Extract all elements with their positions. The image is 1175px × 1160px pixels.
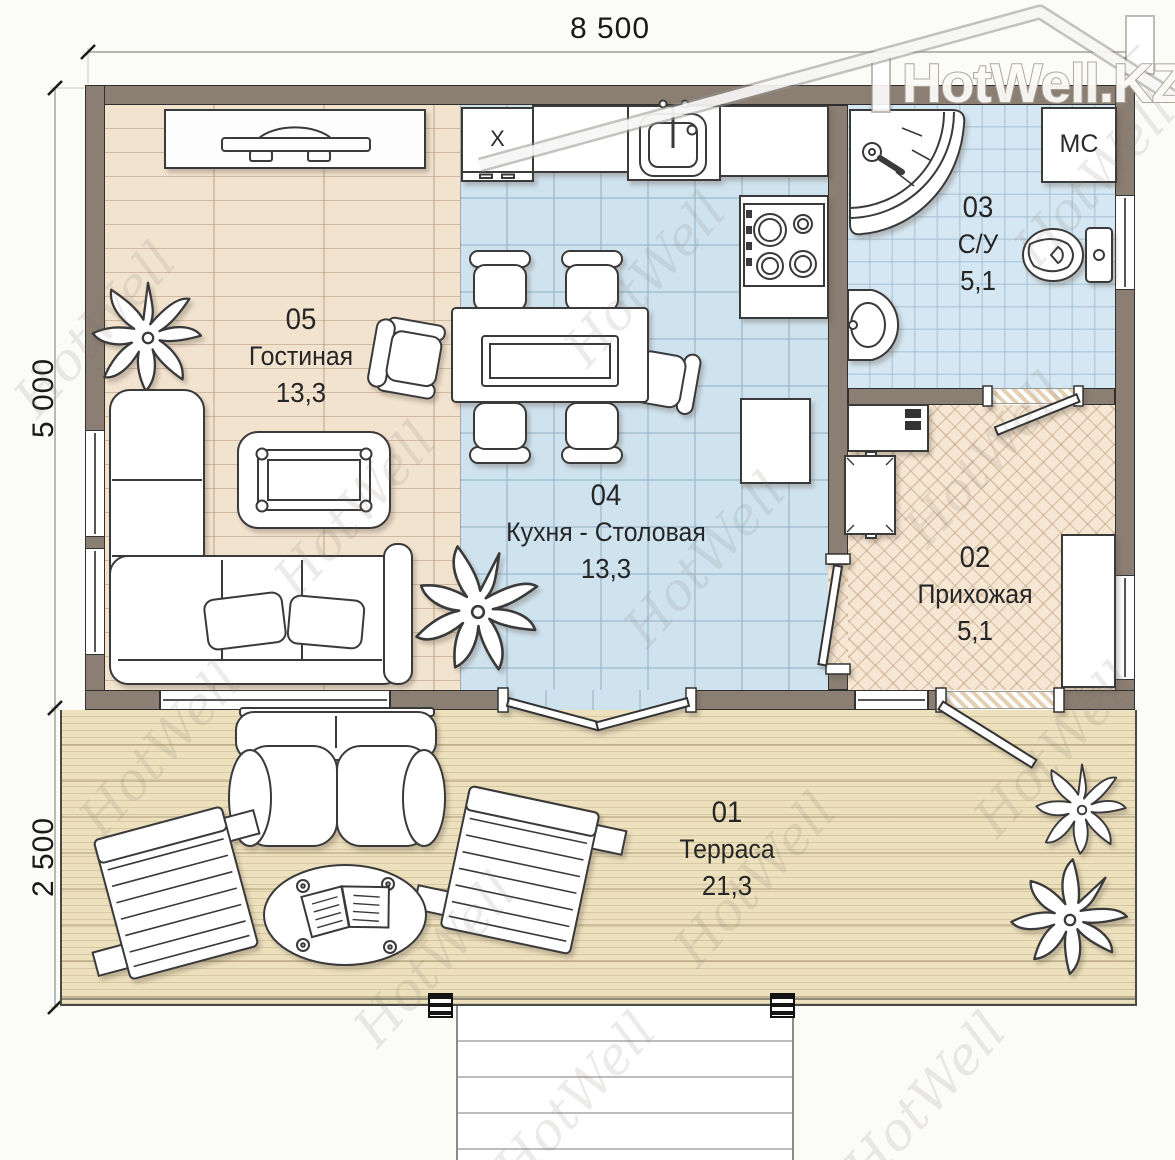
bathroom-door-leaf xyxy=(995,394,1080,434)
bathroom-sink xyxy=(848,290,898,360)
kitchen-island-cabinet xyxy=(741,399,810,483)
room-number: 05 xyxy=(227,302,374,338)
room-area: 5,1 xyxy=(901,612,1048,649)
terrace-door-leaf-right xyxy=(596,698,689,730)
room-label-hallway: 02 Прихожая 5,1 xyxy=(901,540,1048,649)
room-area: 13,3 xyxy=(496,550,717,587)
hallway-door-leaf xyxy=(818,565,842,665)
plant-icon xyxy=(93,283,201,391)
room-area: 5,1 xyxy=(914,262,1043,299)
room-label-bathroom: 03 С/У 5,1 xyxy=(914,190,1043,299)
room-label-living: 05 Гостиная 13,3 xyxy=(227,302,374,411)
hallway-counter xyxy=(848,405,928,451)
room-name: Кухня - Столовая xyxy=(496,514,717,550)
plant-icon xyxy=(1036,764,1125,853)
room-area: 21,3 xyxy=(617,867,838,904)
wardrobe xyxy=(1062,535,1115,687)
room-number: 04 xyxy=(496,478,717,514)
room-name: Гостиная xyxy=(227,338,374,374)
plant-icon xyxy=(994,842,1146,994)
room-label-kitchen: 04 Кухня - Столовая 13,3 xyxy=(496,478,717,587)
room-name: С/У xyxy=(914,226,1043,262)
room-number: 03 xyxy=(914,190,1043,226)
room-area: 13,3 xyxy=(227,374,374,411)
stove xyxy=(744,204,824,286)
room-number: 01 xyxy=(617,795,838,831)
floor-plan: 8 500 5 000 2 500 xyxy=(0,0,1175,1160)
tv-stand xyxy=(165,110,425,168)
cabinet-x-label: X xyxy=(462,126,533,152)
deck-chair xyxy=(65,799,288,988)
washing-machine-label: МС xyxy=(1042,130,1116,159)
dining-table xyxy=(452,308,648,402)
outdoor-sofa xyxy=(229,708,445,846)
terrace-door-leaf-left xyxy=(507,698,600,730)
oval-table xyxy=(264,865,426,965)
water-heater xyxy=(845,452,895,538)
coffee-table xyxy=(238,432,390,528)
room-name: Прихожая xyxy=(901,576,1048,612)
room-label-terrace: 01 Терраса 21,3 xyxy=(617,795,838,904)
room-name: Терраса xyxy=(617,831,838,867)
entrance-door-leaf xyxy=(938,702,1036,768)
room-number: 02 xyxy=(901,540,1048,576)
